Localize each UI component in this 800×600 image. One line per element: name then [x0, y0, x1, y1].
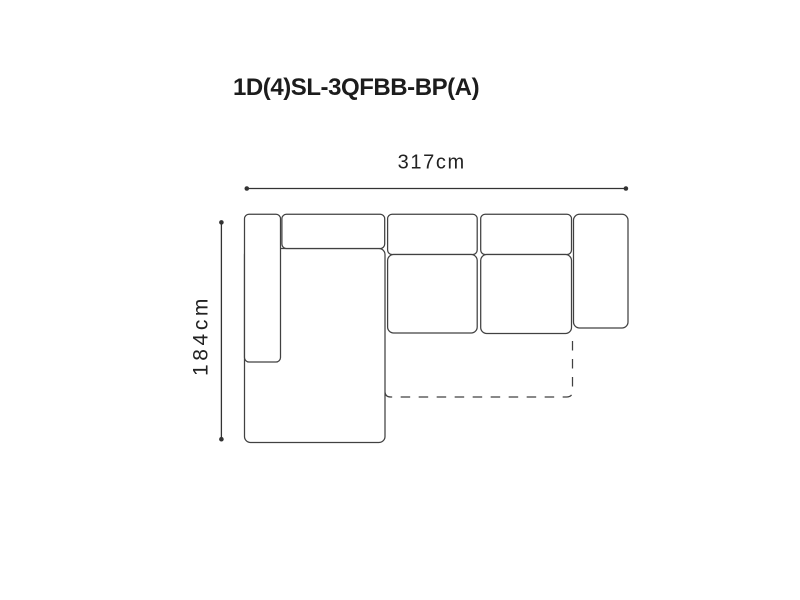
svg-text:317cm: 317cm	[398, 152, 466, 174]
svg-text:1D(4)SL-3QFBB-BP(A): 1D(4)SL-3QFBB-BP(A)	[233, 74, 479, 101]
svg-text:184cm: 184cm	[189, 295, 212, 376]
